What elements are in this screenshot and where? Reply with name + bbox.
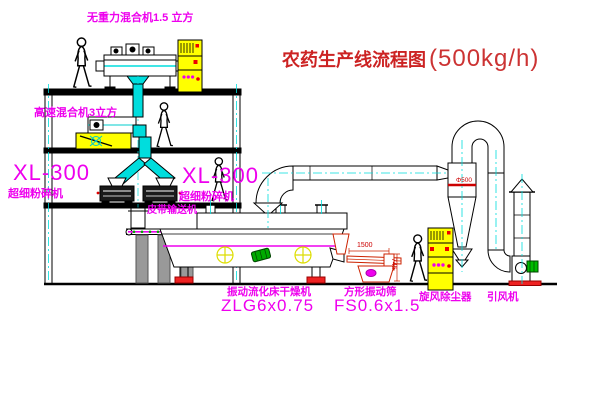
dim-sieve-height: 745 [390, 258, 397, 270]
label-mill-left-name: 超细粉碎机 [8, 189, 63, 200]
label-sieve-model: FS0.6x1.5 [334, 297, 421, 314]
y-splitter-duct [108, 158, 175, 186]
label-mill-right-model: XL-300 [182, 165, 259, 187]
cyclone-marking: Φ500 [451, 178, 477, 185]
person-figure [74, 38, 92, 87]
cad-drawing: 农药生产线流程图 (500kg/h) 无重力混合机1.5 立方 高速混合机3立方… [0, 0, 600, 403]
drawing-title: 农药生产线流程图 (500kg/h) [282, 45, 539, 73]
drawing-title-capacity: (500kg/h) [429, 45, 539, 73]
label-mill-right-name: 超细粉碎机 [179, 192, 234, 203]
label-high-speed-mixer: 高速混合机3立方 [34, 108, 117, 119]
label-fan: 引风机 [487, 292, 519, 303]
label-belt-conveyor: 皮带输送机 [147, 206, 197, 216]
drawing-title-text: 农药生产线流程图 [282, 46, 426, 72]
pulverizer-right [143, 186, 181, 204]
dim-sieve-length: 1500 [357, 242, 373, 249]
control-cabinet-sieve [428, 228, 453, 290]
label-gravity-mixer: 无重力混合机1.5 立方 [87, 13, 193, 24]
label-dryer-model: ZLG6x0.75 [221, 297, 314, 314]
drop-duct [128, 208, 148, 228]
pulverizer-left [97, 186, 134, 204]
person-figure [410, 235, 427, 281]
induced-draft-fan [488, 150, 541, 286]
person-figure [157, 103, 173, 147]
label-mill-left-model: XL-300 [13, 162, 90, 184]
label-cyclone: 旋风除尘器 [419, 292, 472, 303]
control-cabinet-top [178, 40, 202, 92]
